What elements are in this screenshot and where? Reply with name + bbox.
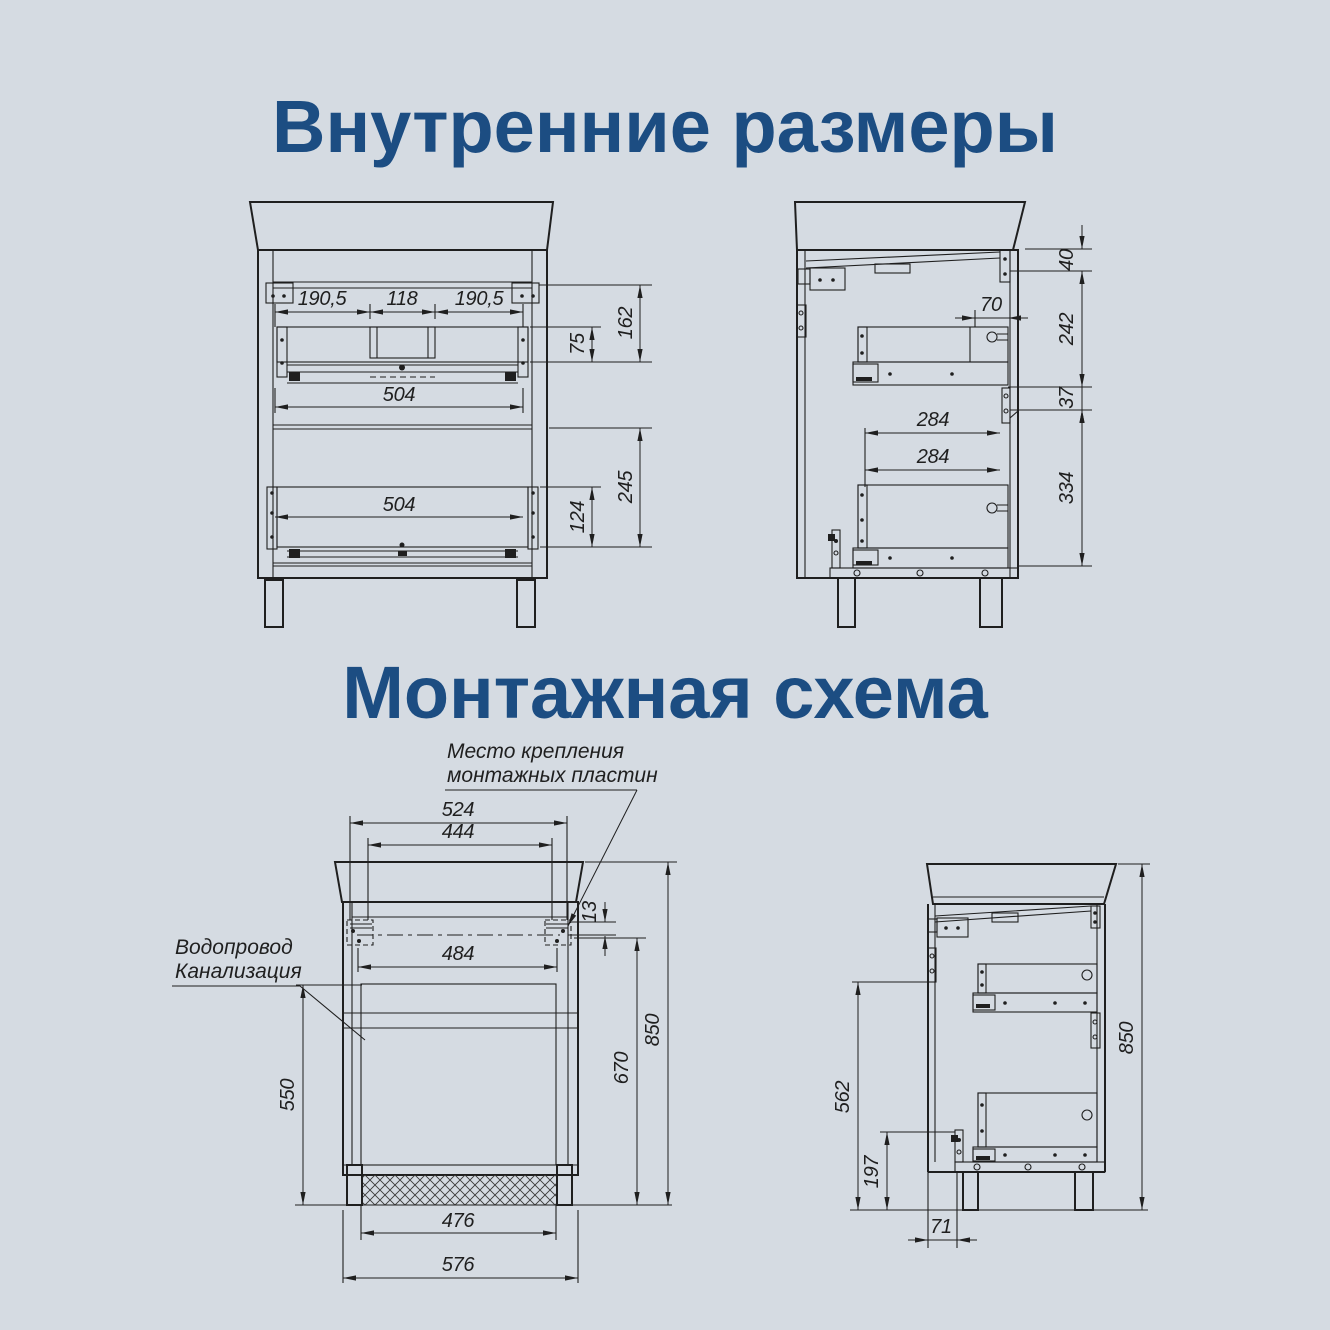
dim-plates-inner: 444	[442, 821, 475, 843]
callout-plumbing-line1: Водопровод	[175, 936, 293, 959]
lower-drawer-side	[978, 1093, 1097, 1147]
dim-plates-height: 670	[611, 1052, 633, 1085]
callout-plumbing-line2: Канализация	[175, 960, 302, 983]
leg-right	[557, 1165, 572, 1205]
countertop	[250, 202, 553, 250]
dim-shelf-left: 190,5	[298, 288, 348, 310]
internal-front-view: 190,5 118 190,5 504 504 75 162 124 245	[250, 202, 652, 627]
leg-left	[265, 580, 283, 627]
page: Внутренние размеры Монтажная схема	[0, 0, 1330, 1330]
mount-bracket-left	[266, 283, 293, 303]
dim-section1-height: 242	[1056, 313, 1078, 347]
dim-drawer2-depth: 284	[916, 446, 950, 468]
dim-holes-span: 484	[442, 943, 475, 965]
dim-bracket-top-height: 562	[832, 1081, 854, 1114]
callout-mounting-plates-line1: Место крепления	[447, 740, 624, 763]
dim-plate-drop: 13	[579, 901, 601, 923]
mount-bracket-right	[512, 283, 539, 303]
dim-rail-inset: 70	[980, 294, 1002, 316]
mounting-side-view: 850 562 197 71	[832, 864, 1150, 1248]
dim-section2-height: 245	[615, 470, 637, 505]
dim-plumbing-height: 550	[277, 1079, 299, 1112]
plumbing-zone-hatch-bottom	[361, 1175, 556, 1205]
dim-drawer1-width: 504	[383, 384, 416, 406]
dim-top-gap: 40	[1056, 249, 1078, 271]
leg-front	[963, 1172, 978, 1210]
countertop	[335, 862, 583, 902]
dim-drawer1-front-height: 75	[567, 332, 589, 355]
dim-total-height: 850	[642, 1014, 664, 1047]
countertop	[927, 864, 1116, 904]
leg-left	[347, 1165, 362, 1205]
dim-total-height: 850	[1116, 1022, 1138, 1055]
dim-shelf-right: 190,5	[455, 288, 505, 310]
dim-drawer1-depth: 284	[916, 409, 950, 431]
internal-side-view: 70 284 284	[795, 202, 1092, 627]
dim-drawer2-width: 504	[383, 494, 416, 516]
callout-mounting-plates-line2: монтажных пластин	[447, 764, 658, 787]
leg-back	[1075, 1172, 1093, 1210]
lower-drawer-side	[858, 485, 1008, 548]
mounting-front-view: Место крепления монтажных пластин 524 44…	[172, 740, 677, 1283]
upper-drawer-side	[978, 964, 1097, 993]
dim-section1-height: 162	[615, 307, 637, 340]
plumbing-zone-hatch	[361, 984, 556, 1165]
dim-front-offset: 71	[930, 1216, 952, 1238]
dim-section2-height: 334	[1056, 472, 1078, 505]
leg-back	[980, 578, 1002, 627]
dim-plates-outer: 524	[442, 799, 475, 821]
dim-plumbing-width: 476	[442, 1210, 476, 1232]
leg-front	[838, 578, 855, 627]
callout-leader-plumbing	[172, 986, 365, 1040]
leg-right	[517, 580, 535, 627]
dim-bracket-bottom-height: 197	[861, 1155, 883, 1189]
upper-drawer-side	[858, 327, 1008, 362]
upper-drawer-front	[277, 327, 528, 362]
siphon-cutout	[370, 327, 435, 358]
dim-shelf-center: 118	[387, 288, 418, 310]
dim-total-width: 576	[442, 1254, 476, 1276]
technical-drawing-canvas: 190,5 118 190,5 504 504 75 162 124 245	[0, 0, 1330, 1330]
dim-drawer2-front-height: 124	[567, 501, 589, 534]
dim-bracket-gap: 37	[1056, 386, 1078, 409]
countertop	[795, 202, 1025, 250]
